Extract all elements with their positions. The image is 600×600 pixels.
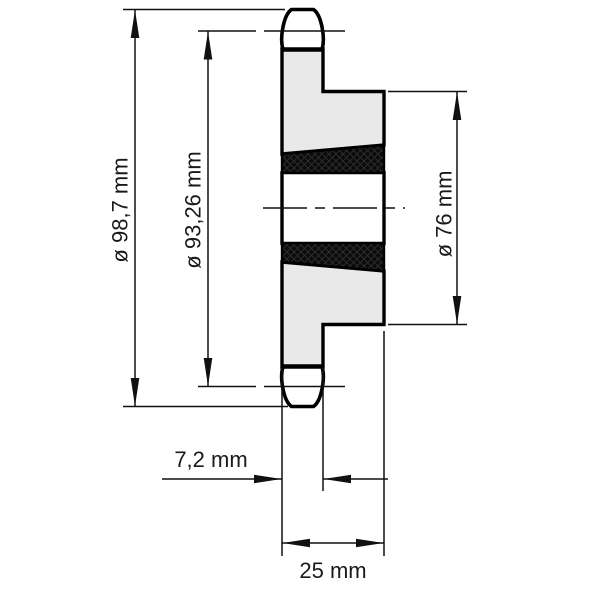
- sprocket-lower-body: [282, 262, 384, 367]
- sprocket-upper-body: [282, 49, 384, 154]
- dim-hub-diameter: ø 76 mm: [388, 92, 467, 325]
- arrow-up-icon: [131, 10, 140, 38]
- dim-label-hub-width: 25 mm: [299, 558, 366, 583]
- arrow-up-icon: [204, 32, 213, 60]
- dim-label-tooth-width: 7,2 mm: [174, 447, 247, 472]
- dim-tooth-width: 7,2 mm: [162, 368, 388, 556]
- dim-label-pitch-diameter: ø 93,26 mm: [181, 151, 206, 268]
- arrow-left-icon: [283, 539, 311, 548]
- arrow-right-icon: [254, 475, 282, 484]
- arrow-down-icon: [204, 358, 213, 386]
- technical-drawing: ø 98,7 mm ø 93,26 mm ø 76 mm 7,2 mm: [0, 0, 600, 600]
- arrow-left-icon: [324, 475, 352, 484]
- arrow-up-icon: [453, 92, 462, 120]
- arrow-down-icon: [453, 296, 462, 324]
- arrow-down-icon: [131, 378, 140, 406]
- dim-label-outer-diameter: ø 98,7 mm: [108, 157, 133, 262]
- arrow-right-icon: [356, 539, 384, 548]
- sprocket-drawing-svg: ø 98,7 mm ø 93,26 mm ø 76 mm 7,2 mm: [0, 0, 600, 600]
- dim-label-hub-diameter: ø 76 mm: [432, 171, 457, 258]
- tooth-top: [282, 10, 324, 50]
